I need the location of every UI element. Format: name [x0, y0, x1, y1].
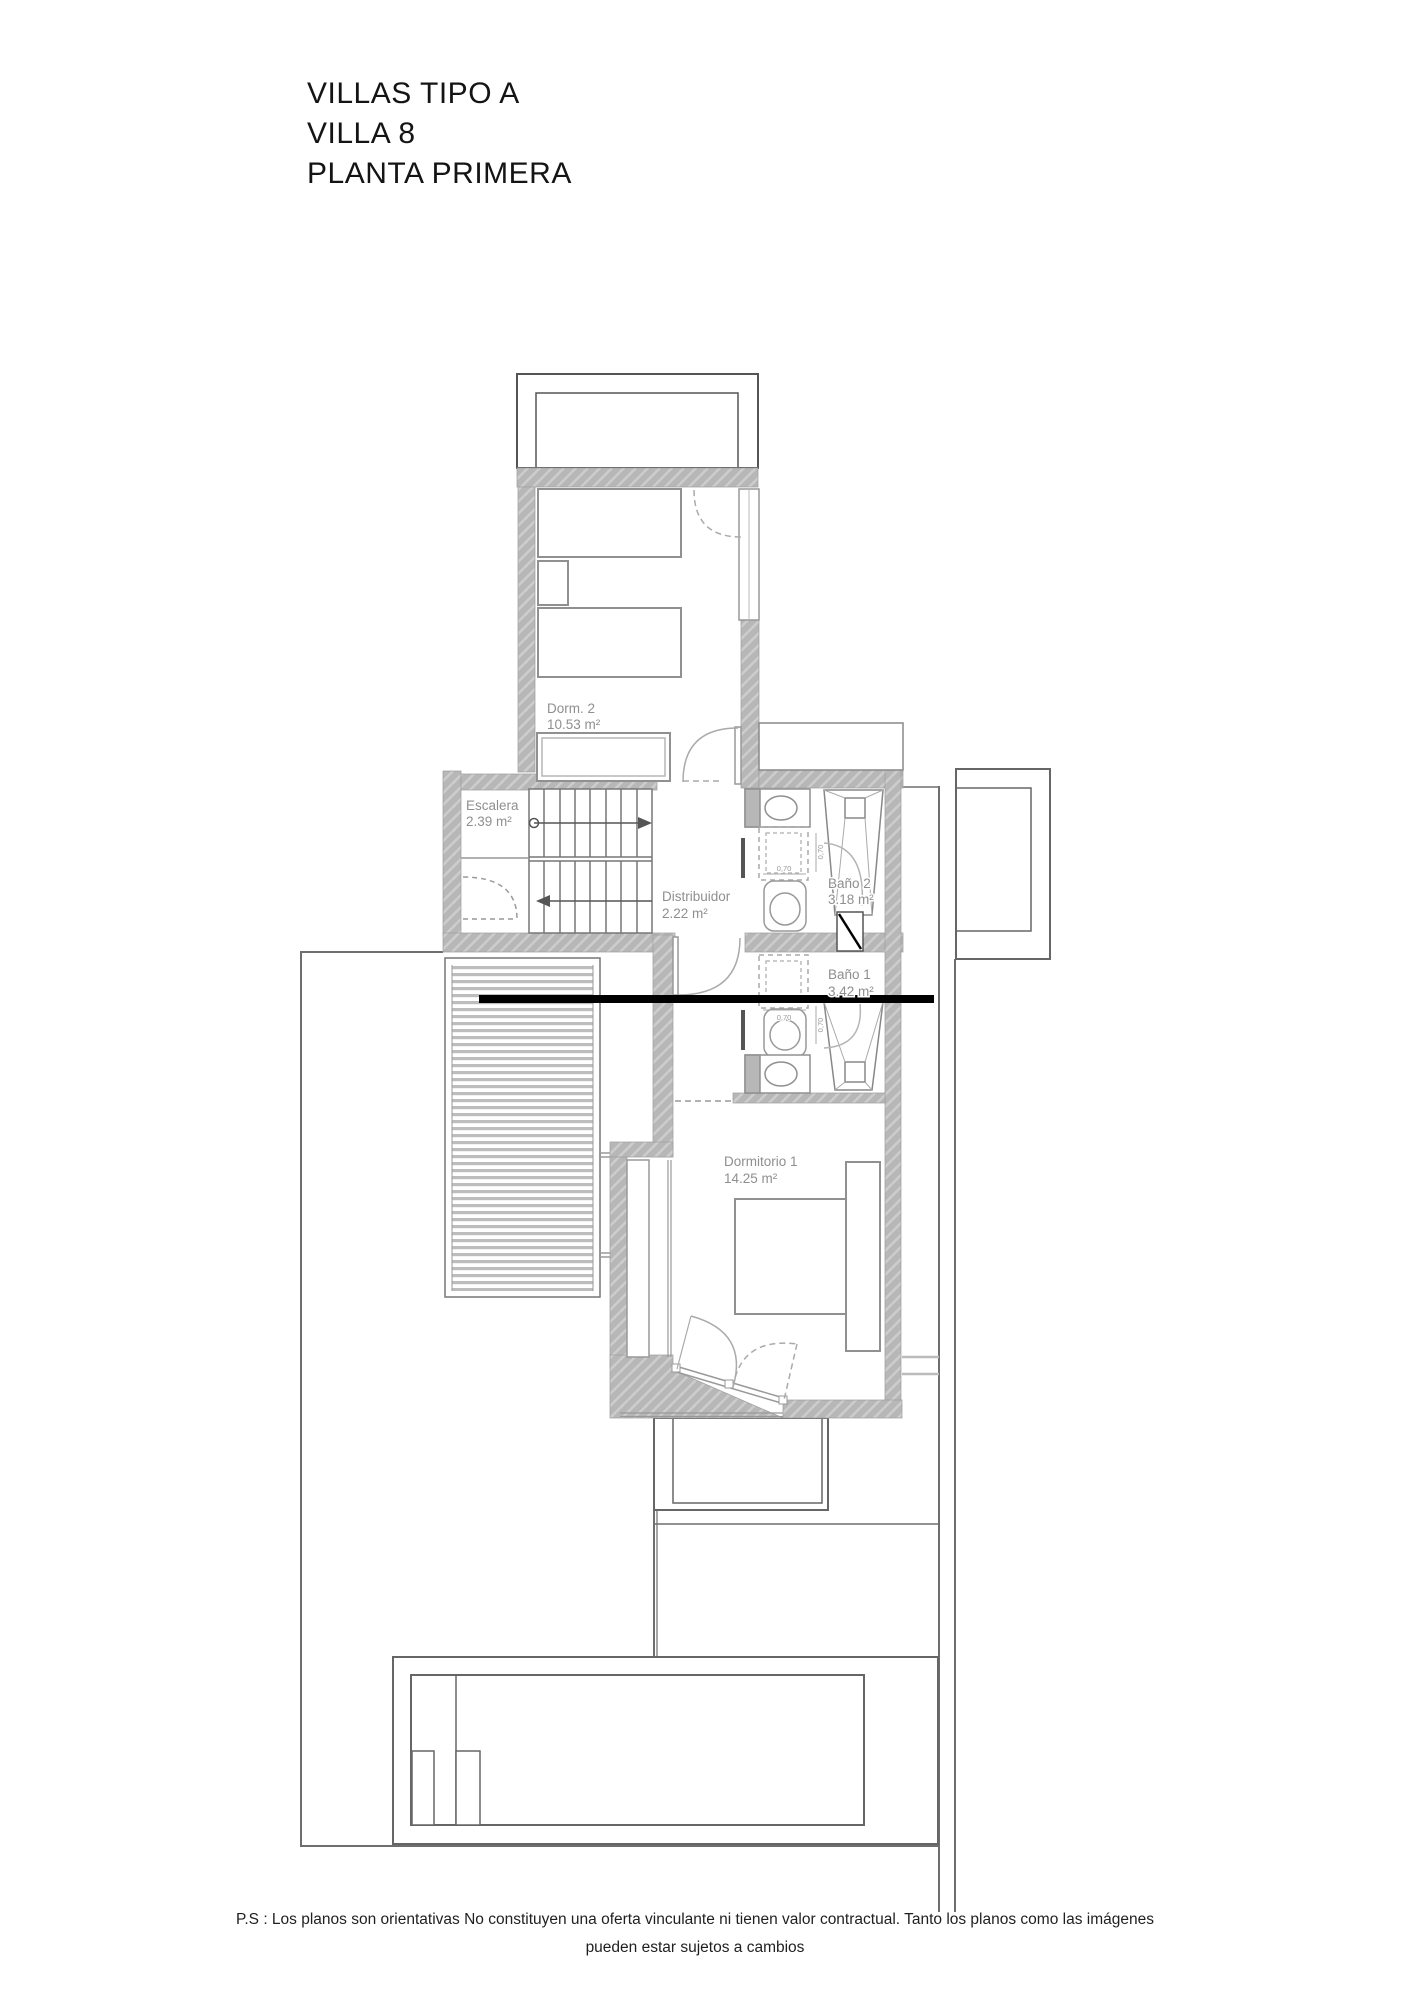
balcony-bottom	[654, 1418, 828, 1510]
label-dorm2-area: 10.53 m²	[547, 717, 601, 732]
disclaimer: P.S : Los planos son orientativas No con…	[0, 1906, 1390, 1962]
terrace-top	[517, 374, 758, 468]
dim-070: 0,70	[816, 845, 825, 860]
wall	[610, 1142, 673, 1157]
dim-070: 0,70	[816, 1018, 825, 1033]
label-escalera-area: 2.39 m²	[466, 814, 512, 829]
bed-dorm1	[735, 1199, 846, 1314]
wall	[783, 1400, 902, 1418]
label-bano2-name: Baño 2	[828, 876, 871, 891]
wall	[759, 770, 903, 788]
floor-plan: Dorm. 2 10.53 m² Escalera 2.39 m² Distri…	[0, 0, 1414, 2000]
wall	[518, 487, 535, 772]
wall	[733, 1093, 885, 1103]
label-escalera-name: Escalera	[466, 798, 519, 813]
wall	[885, 770, 901, 1417]
disclaimer-line-1: P.S : Los planos son orientativas No con…	[0, 1906, 1390, 1934]
bed-dorm2-1	[538, 489, 681, 557]
wall	[653, 935, 673, 1157]
label-dormitorio1-area: 14.25 m²	[724, 1171, 778, 1186]
wall	[443, 771, 461, 935]
label-bano1-name: Baño 1	[828, 967, 871, 982]
wall	[443, 933, 675, 952]
dim-070: 0,70	[777, 864, 792, 873]
wall-wedge	[610, 1355, 783, 1418]
closet-box	[759, 723, 903, 770]
label-dormitorio1-name: Dormitorio 1	[724, 1154, 798, 1169]
window-bay-dorm1	[627, 1160, 649, 1357]
terrace-right	[956, 769, 1050, 959]
wall	[610, 1157, 627, 1368]
bed-dorm2-2	[538, 608, 681, 677]
label-bano2-area: 3.18 m²	[828, 892, 874, 907]
pool-steps	[412, 1751, 434, 1825]
label-distribuidor-name: Distribuidor	[662, 889, 731, 904]
pool-steps	[456, 1751, 480, 1825]
wall	[517, 468, 758, 487]
label-distribuidor-area: 2.22 m²	[662, 906, 708, 921]
disclaimer-line-2: pueden estar sujetos a cambios	[0, 1934, 1390, 1962]
wall-stub	[902, 1357, 939, 1374]
pergola-louvers	[445, 958, 610, 1297]
wardrobe-inner	[542, 738, 665, 776]
headboard-dorm1	[846, 1162, 880, 1351]
nightstand-dorm2	[538, 561, 568, 605]
label-dorm2-name: Dorm. 2	[547, 701, 595, 716]
label-bano1-area: 3.42 m²	[828, 984, 874, 999]
wall	[745, 933, 903, 952]
pool	[393, 1657, 938, 1844]
dim-070: 0,70	[777, 1013, 792, 1022]
wall	[741, 620, 759, 788]
